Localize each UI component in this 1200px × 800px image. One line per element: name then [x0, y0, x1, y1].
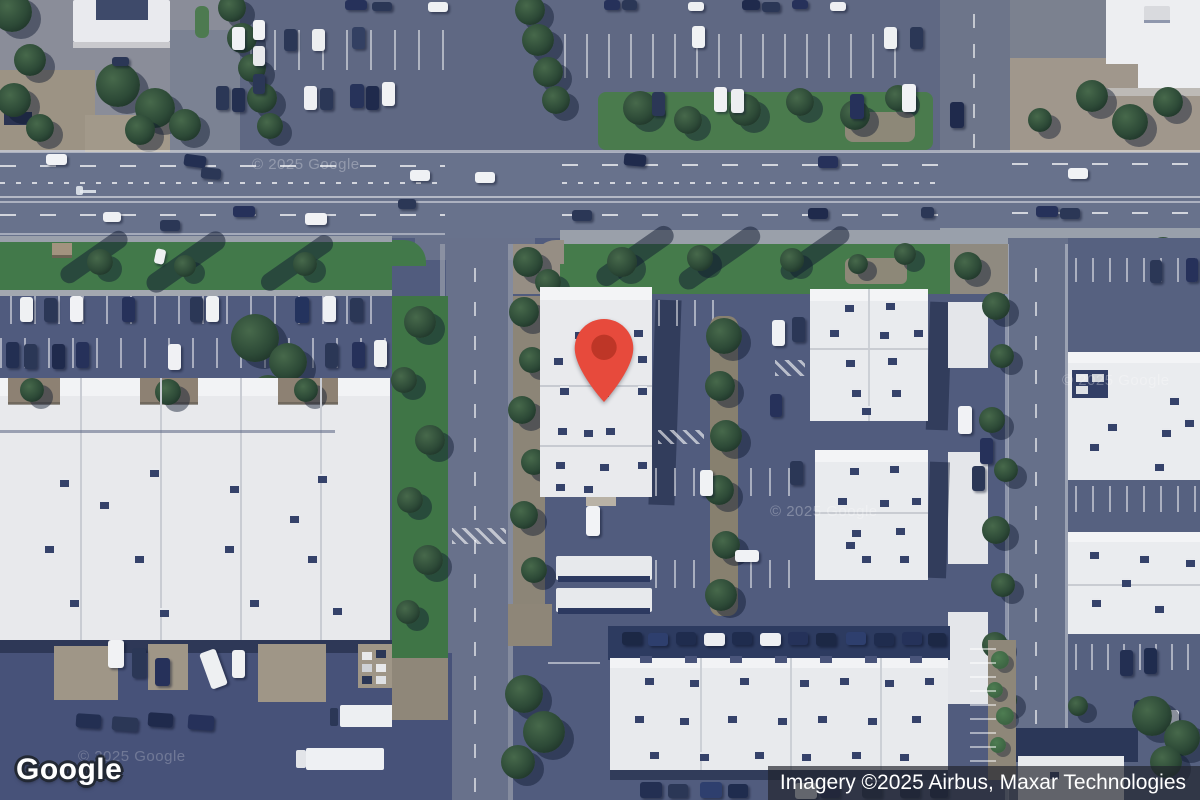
tree	[705, 579, 737, 611]
tree	[269, 343, 307, 381]
parking-stall-line	[1177, 486, 1179, 512]
map-feature	[1068, 532, 1200, 634]
roof-vent	[886, 301, 895, 310]
vehicle	[6, 342, 19, 368]
tree	[994, 458, 1018, 482]
vehicle	[790, 461, 803, 485]
map-feature	[330, 708, 338, 726]
tree	[404, 306, 436, 338]
parking-stall-line	[762, 34, 764, 78]
map-feature	[0, 378, 390, 640]
parking-stall-line	[970, 760, 996, 762]
vehicle	[728, 784, 748, 798]
parking-stall-line	[674, 560, 676, 588]
vehicle	[972, 466, 985, 491]
map-feature	[1144, 20, 1170, 23]
roof-vent	[862, 554, 871, 563]
roof-vent	[830, 328, 839, 337]
vehicle	[572, 210, 592, 221]
parking-stall-line	[784, 34, 786, 78]
parking-stall-line	[370, 296, 372, 324]
parking-stall-line	[1092, 486, 1094, 512]
parking-stall-line	[1139, 644, 1141, 670]
vehicle	[325, 343, 338, 368]
parking-stall-line	[418, 30, 420, 70]
roof-vent	[852, 528, 861, 537]
parking-stall-line	[769, 468, 771, 496]
parking-stall-line	[154, 296, 156, 324]
roof-vent	[584, 484, 593, 493]
roof-vent	[638, 386, 647, 395]
parking-stall-line	[1171, 644, 1173, 670]
map-feature	[0, 196, 1200, 198]
vehicle	[770, 394, 782, 417]
parking-stall-line	[674, 34, 676, 78]
vehicle	[688, 2, 704, 11]
vehicle	[1186, 258, 1198, 282]
vehicle	[704, 633, 725, 646]
vehicle	[742, 0, 760, 10]
map-feature	[820, 656, 832, 663]
vehicle	[910, 27, 923, 49]
roof-vent	[556, 482, 565, 491]
roof-vent	[584, 428, 593, 437]
parking-stall-line	[694, 300, 696, 326]
map-feature	[1106, 88, 1200, 96]
map-feature	[76, 186, 83, 195]
satellite-map-viewport[interactable]: © 2025 Google © 2025 Google © 2025 Googl…	[0, 0, 1200, 800]
roof-vent	[606, 426, 615, 435]
google-watermark: © 2025 Google	[252, 156, 360, 173]
parking-stall-line	[1109, 258, 1111, 282]
roof-vent	[160, 608, 169, 617]
tree	[257, 113, 283, 139]
vehicle	[700, 782, 722, 798]
tree	[413, 545, 443, 575]
roof-vent	[308, 554, 317, 563]
vehicle	[692, 26, 705, 48]
parking-stall-line	[718, 34, 720, 78]
vehicle	[312, 29, 325, 51]
parking-stall-line	[144, 338, 146, 368]
vehicle	[320, 88, 333, 110]
hatched-road-marking	[775, 360, 805, 376]
roof-vent	[846, 358, 855, 367]
parking-stall-line	[828, 34, 830, 78]
vehicle	[902, 84, 916, 112]
parking-stall-line	[1092, 258, 1094, 282]
parking-stall-line	[442, 30, 444, 70]
roof-vent	[880, 498, 889, 507]
map-feature	[362, 664, 372, 672]
vehicle	[818, 156, 838, 168]
map-feature	[320, 378, 322, 640]
vehicle	[253, 74, 265, 94]
parking-stall-line	[394, 30, 396, 70]
vehicle	[216, 86, 229, 110]
parking-stall-line	[655, 468, 657, 496]
map-feature	[160, 378, 162, 640]
roof-vent	[914, 328, 923, 337]
map-feature	[306, 748, 384, 770]
roof-vent	[892, 388, 901, 397]
parking-stall-line	[192, 338, 194, 368]
tree	[294, 378, 318, 402]
vehicle	[622, 632, 642, 645]
lane-marking	[1012, 163, 1200, 165]
roof-vent	[740, 676, 749, 685]
bush	[996, 707, 1014, 725]
vehicle	[1036, 206, 1058, 217]
roof-vent	[840, 676, 849, 685]
map-feature	[96, 0, 148, 20]
tree	[125, 115, 155, 145]
tree	[954, 252, 982, 280]
map-feature	[80, 378, 82, 640]
location-marker-icon[interactable]	[574, 319, 634, 402]
map-feature	[195, 6, 209, 38]
tree	[982, 516, 1010, 544]
parking-stall-line	[178, 296, 180, 324]
roof-vent	[600, 462, 609, 471]
roof-vent	[1185, 418, 1194, 427]
roof-vent	[1162, 428, 1171, 437]
roof-vent	[45, 544, 54, 553]
tree	[894, 243, 916, 265]
parking-stall-line	[274, 296, 276, 324]
google-logo[interactable]: Google	[16, 753, 122, 787]
tree	[14, 44, 46, 76]
vehicle	[350, 298, 363, 322]
bush	[990, 737, 1006, 753]
vehicle	[668, 784, 688, 798]
tree	[96, 63, 140, 107]
map-feature	[362, 652, 372, 660]
map-feature	[0, 430, 335, 433]
vehicle	[76, 342, 89, 368]
parking-stall-line	[970, 648, 996, 650]
vehicle	[676, 632, 696, 645]
parking-stall-line	[274, 30, 276, 70]
parking-stall-line	[1177, 258, 1179, 282]
parking-stall-line	[1107, 644, 1109, 670]
vehicle	[700, 470, 713, 496]
parking-stall-line	[693, 468, 695, 496]
vehicle	[874, 633, 894, 646]
roof-vent	[225, 544, 234, 553]
map-feature	[730, 656, 742, 663]
lane-marking	[562, 214, 940, 216]
map-feature	[446, 238, 508, 800]
roof-vent	[250, 598, 259, 607]
vehicle	[731, 89, 744, 113]
roof-vent	[333, 606, 342, 615]
vehicle	[160, 220, 180, 231]
map-feature	[610, 658, 948, 770]
tree	[169, 109, 201, 141]
roof-vent	[60, 478, 69, 487]
parking-stall-line	[346, 296, 348, 324]
parking-stall-line	[1075, 644, 1077, 670]
vehicle	[1150, 260, 1162, 283]
roof-vent	[70, 598, 79, 607]
vehicle	[382, 82, 395, 106]
tree	[87, 249, 113, 275]
vehicle	[586, 506, 600, 536]
parking-stall-line	[1160, 486, 1162, 512]
map-feature	[392, 658, 448, 720]
vehicle	[830, 2, 846, 11]
vehicle	[816, 633, 836, 646]
roof-vent	[912, 496, 921, 505]
tree	[991, 573, 1015, 597]
roof-vent	[560, 386, 569, 395]
parking-stall-line	[1109, 486, 1111, 512]
map-feature	[1008, 238, 1068, 800]
map-feature	[8, 402, 60, 405]
roof-vent	[852, 750, 861, 759]
vehicle	[168, 344, 181, 370]
map-feature	[258, 644, 326, 702]
map-feature	[376, 676, 386, 684]
marker-body	[575, 319, 634, 402]
tree	[982, 292, 1010, 320]
roof-vent	[802, 752, 811, 761]
vehicle	[428, 2, 448, 12]
roof-vent	[638, 354, 647, 363]
vehicle	[148, 712, 174, 728]
roof-vent	[888, 356, 897, 365]
vehicle	[475, 172, 495, 183]
map-feature	[376, 650, 386, 658]
vehicle	[902, 632, 922, 645]
vehicle	[762, 2, 780, 12]
vehicle	[206, 296, 219, 322]
roof-vent	[885, 678, 894, 687]
tree	[674, 106, 702, 134]
roof-vent	[900, 752, 909, 761]
roof-vent	[880, 330, 889, 339]
roof-vent	[554, 356, 563, 365]
map-feature	[376, 664, 386, 672]
vehicle	[772, 320, 785, 346]
roof-vent	[1108, 422, 1117, 431]
vehicle	[884, 27, 897, 49]
vehicle	[253, 46, 265, 66]
vehicle	[284, 29, 297, 51]
map-feature	[926, 462, 950, 579]
roof-vent	[290, 514, 299, 523]
vehicle	[808, 208, 828, 219]
map-feature	[392, 720, 448, 800]
parking-stall-line	[312, 338, 314, 368]
vehicle	[352, 27, 365, 49]
tree	[20, 378, 44, 402]
parking-stall-line	[1143, 486, 1145, 512]
tree	[1112, 104, 1148, 140]
roof-vent	[230, 484, 239, 493]
map-feature	[558, 576, 650, 582]
vehicle	[921, 207, 934, 218]
roof-vent	[1155, 604, 1164, 613]
marker-inner-dot	[591, 335, 616, 360]
parking-stall-line	[970, 732, 996, 734]
roof-vent	[690, 678, 699, 687]
vehicle	[410, 170, 430, 181]
map-feature	[640, 656, 652, 663]
vehicle	[850, 94, 864, 119]
vehicle	[112, 57, 129, 66]
tree	[848, 254, 868, 274]
tree	[533, 57, 563, 87]
vehicle	[350, 84, 364, 108]
map-feature	[1106, 64, 1138, 88]
vehicle	[788, 632, 808, 645]
parking-stall-line	[1075, 258, 1077, 282]
vehicle	[108, 640, 124, 668]
tree	[1153, 87, 1183, 117]
map-feature	[810, 348, 928, 350]
vehicle	[253, 20, 265, 40]
map-feature	[1068, 532, 1200, 542]
vehicle	[233, 206, 255, 217]
tree	[1076, 80, 1108, 112]
vehicle	[792, 0, 808, 9]
tree	[542, 86, 570, 114]
tree	[1028, 108, 1052, 132]
map-feature	[815, 450, 928, 462]
vehicle	[980, 438, 993, 464]
vehicle	[374, 340, 387, 367]
vehicle	[46, 154, 67, 165]
vehicle	[714, 87, 727, 112]
map-feature	[362, 676, 372, 684]
parking-stall-line	[96, 338, 98, 368]
vehicle	[20, 297, 33, 322]
vehicle	[604, 0, 620, 10]
vehicle	[372, 2, 392, 11]
roof-vent	[896, 526, 905, 535]
parking-stall-line	[120, 338, 122, 368]
roof-vent	[645, 676, 654, 685]
tree	[706, 318, 742, 354]
parking-stall-line	[850, 34, 852, 78]
roof-vent	[800, 678, 809, 687]
parking-stall-line	[1075, 486, 1077, 512]
tree	[979, 407, 1005, 433]
map-feature	[52, 255, 72, 258]
vehicle	[103, 212, 121, 222]
tree	[510, 501, 538, 529]
roof-vent	[1155, 462, 1164, 471]
map-feature	[1068, 584, 1200, 586]
vehicle	[295, 297, 309, 323]
roof-vent	[925, 676, 934, 685]
vehicle	[24, 344, 37, 369]
vehicle	[624, 153, 647, 167]
parking-stall-line	[676, 300, 678, 326]
tree	[780, 248, 804, 272]
lane-marking	[562, 164, 940, 166]
vehicle	[735, 550, 759, 562]
map-feature	[0, 201, 1200, 203]
tree	[396, 600, 420, 624]
vehicle	[52, 344, 65, 369]
parking-stall-line	[216, 338, 218, 368]
vehicle	[1060, 208, 1080, 219]
tree	[415, 425, 445, 455]
roof-vent	[912, 714, 921, 723]
map-feature	[586, 497, 616, 506]
vehicle	[345, 0, 367, 10]
map-feature	[540, 445, 652, 447]
parking-stall-line	[72, 338, 74, 368]
roof-vent	[850, 466, 859, 475]
parking-stall-line	[58, 296, 60, 324]
roof-vent	[1186, 558, 1195, 567]
parking-stall-line	[788, 560, 790, 588]
vehicle	[304, 86, 317, 110]
map-feature	[948, 302, 988, 368]
parking-stall-line	[226, 296, 228, 324]
parking-stall-line	[750, 468, 752, 496]
vehicle	[366, 86, 379, 110]
lane-marking	[1035, 258, 1037, 792]
parking-stall-line	[693, 560, 695, 588]
roof-vent	[755, 750, 764, 759]
tree	[501, 745, 535, 779]
map-feature	[880, 658, 882, 770]
lane-marking	[0, 214, 445, 216]
vehicle	[323, 296, 336, 322]
roof-vent	[900, 554, 909, 563]
roof-vent	[1090, 442, 1099, 451]
roof-vent	[890, 464, 899, 473]
tree	[523, 711, 565, 753]
parking-stall-line	[48, 338, 50, 368]
tree	[174, 255, 196, 277]
lane-marking	[0, 182, 445, 184]
vehicle	[1120, 650, 1133, 676]
map-feature	[73, 42, 170, 48]
map-feature	[790, 658, 792, 770]
tree	[508, 396, 536, 424]
map-feature	[940, 0, 1010, 152]
vehicle	[352, 342, 365, 368]
tree	[607, 247, 637, 277]
roof-vent	[680, 716, 689, 725]
vehicle	[188, 714, 215, 731]
map-feature	[0, 150, 1200, 153]
parking-stall-line	[10, 296, 12, 324]
parking-stall-line	[34, 296, 36, 324]
tree	[990, 344, 1014, 368]
vehicle	[70, 296, 83, 322]
roof-vent	[1090, 550, 1099, 559]
parking-stall-line	[674, 468, 676, 496]
roof-vent	[852, 388, 861, 397]
parking-stall-line	[106, 296, 108, 324]
tree	[522, 24, 554, 56]
vehicle	[201, 167, 222, 180]
imagery-attribution: Imagery ©2025 Airbus, Maxar Technologies	[768, 766, 1200, 800]
roof-vent	[318, 474, 327, 483]
vehicle	[732, 632, 752, 645]
map-feature	[296, 750, 306, 768]
parking-stall-line	[970, 676, 996, 678]
parking-stall-line	[970, 746, 996, 748]
vehicle	[950, 102, 964, 128]
